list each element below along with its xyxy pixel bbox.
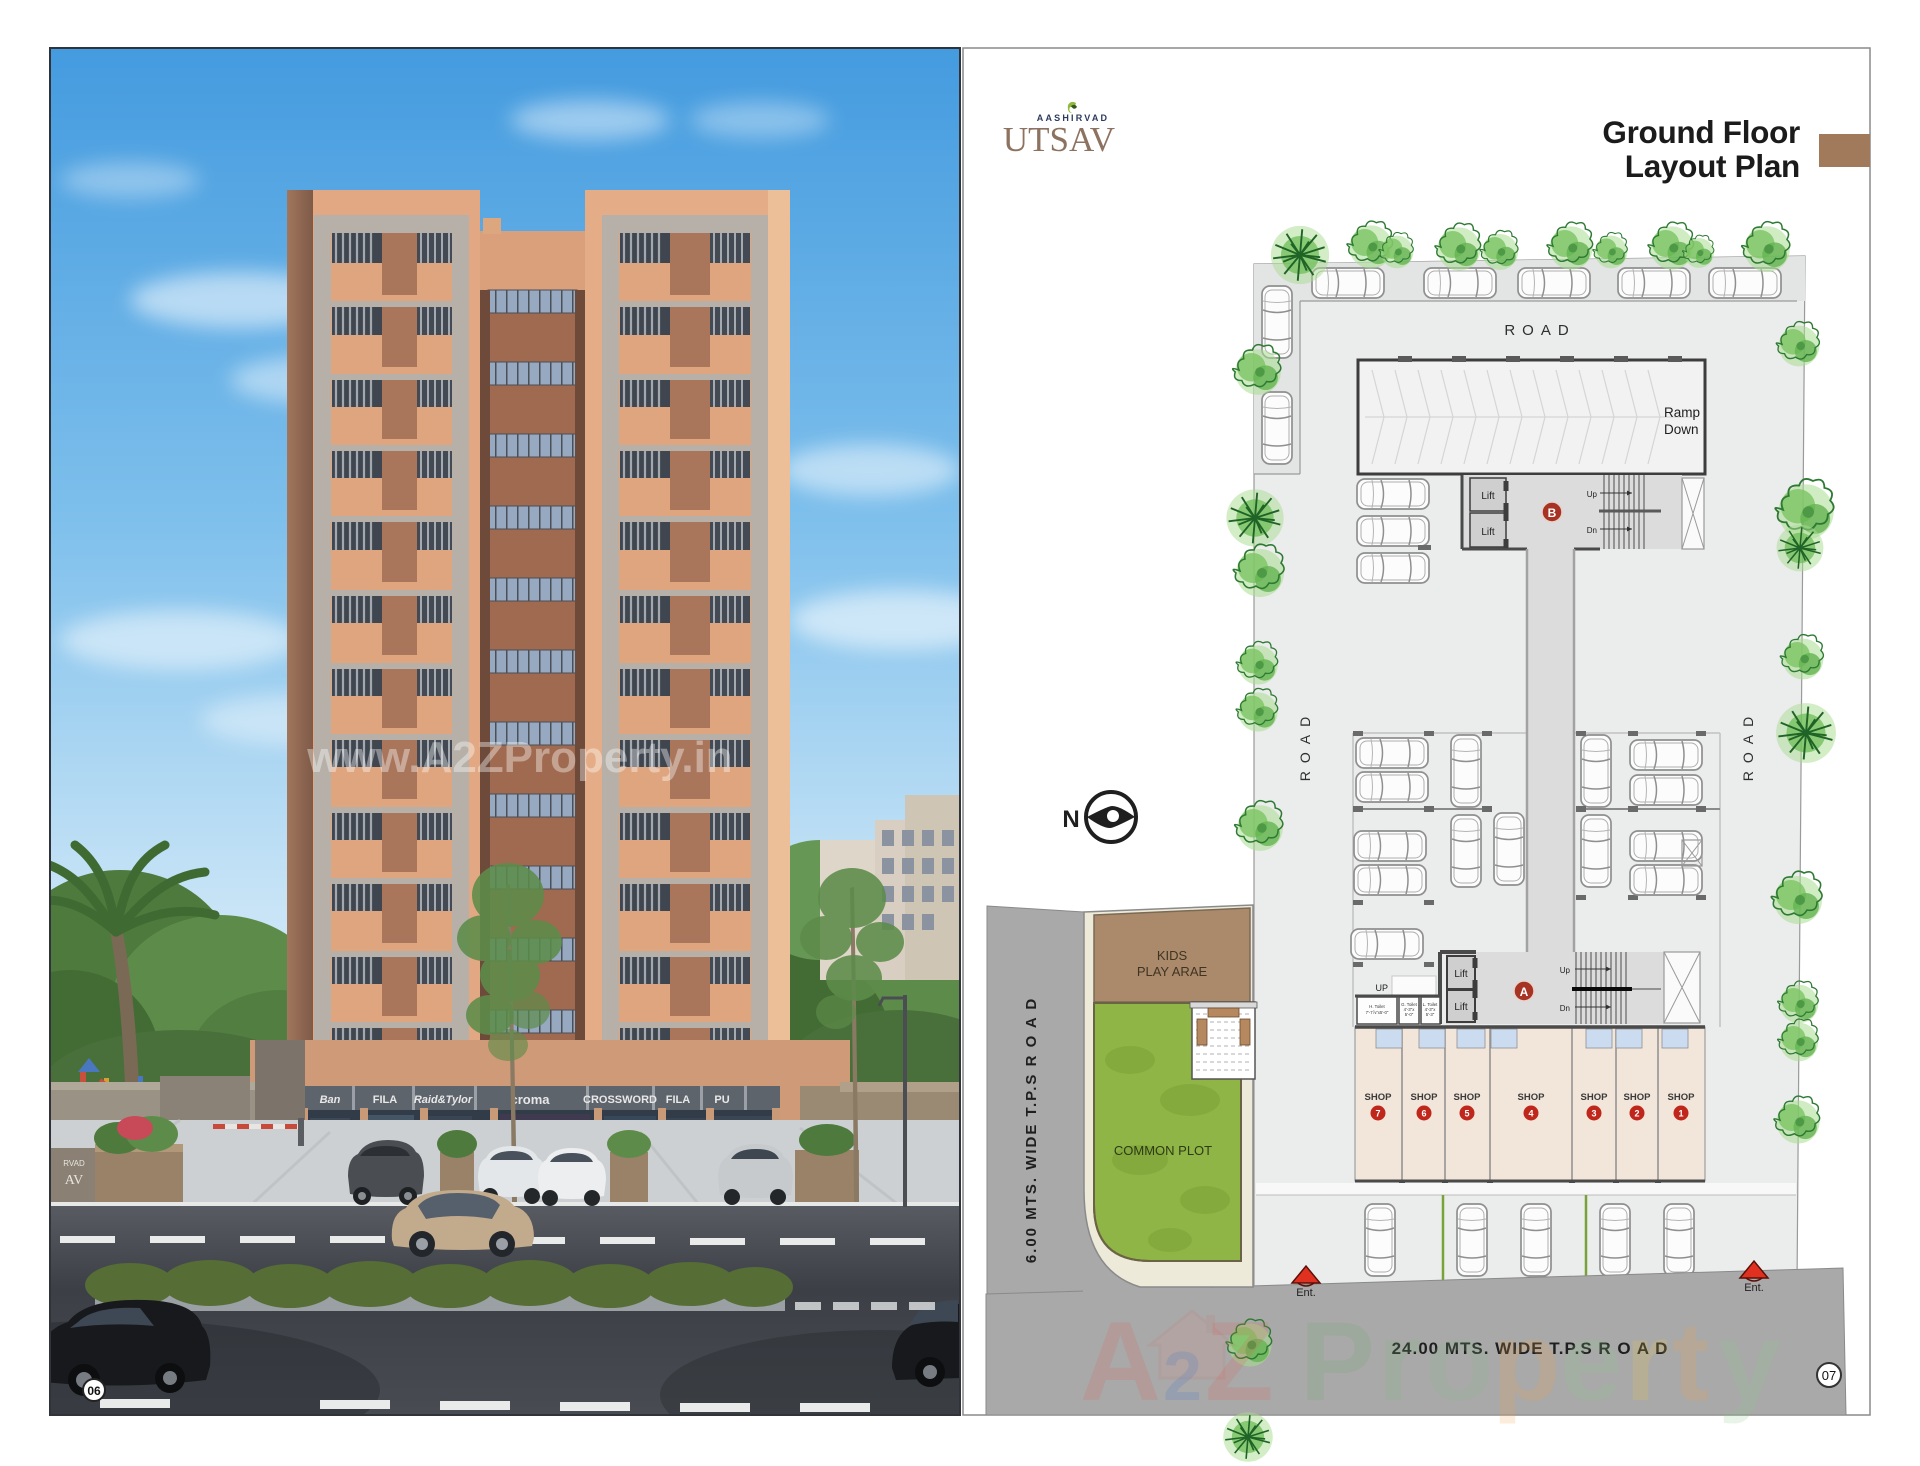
svg-text:ROAD: ROAD bbox=[1740, 709, 1756, 781]
svg-text:2: 2 bbox=[1163, 1337, 1202, 1415]
svg-text:5'-3": 5'-3" bbox=[1426, 1012, 1435, 1017]
svg-text:Dn: Dn bbox=[1560, 1004, 1570, 1013]
svg-text:AV: AV bbox=[65, 1173, 83, 1188]
svg-text:Ent.: Ent. bbox=[1296, 1287, 1316, 1299]
svg-text:H. Toilet: H. Toilet bbox=[1369, 1004, 1385, 1009]
svg-text:A: A bbox=[1520, 985, 1529, 999]
svg-text:SHOP: SHOP bbox=[1668, 1092, 1696, 1103]
svg-text:B: B bbox=[1548, 506, 1557, 520]
svg-text:COMMON PLOT: COMMON PLOT bbox=[1114, 1143, 1212, 1158]
svg-text:SHOP: SHOP bbox=[1581, 1092, 1609, 1103]
svg-text:ROAD: ROAD bbox=[1504, 322, 1575, 339]
svg-text:1: 1 bbox=[1678, 1109, 1683, 1119]
svg-text:SHOP: SHOP bbox=[1518, 1092, 1546, 1103]
svg-text:UP: UP bbox=[1375, 983, 1388, 993]
svg-text:r: r bbox=[1378, 1299, 1422, 1424]
svg-text:croma: croma bbox=[510, 1092, 550, 1107]
svg-text:KIDS: KIDS bbox=[1157, 948, 1188, 963]
svg-text:Ent.: Ent. bbox=[1744, 1282, 1764, 1294]
svg-text:SHOP: SHOP bbox=[1411, 1092, 1439, 1103]
svg-text:SHOP: SHOP bbox=[1454, 1092, 1482, 1103]
svg-text:6: 6 bbox=[1421, 1109, 1426, 1119]
svg-text:FILA: FILA bbox=[666, 1094, 690, 1106]
svg-text:Lift: Lift bbox=[1481, 491, 1495, 502]
svg-text:Dn: Dn bbox=[1587, 526, 1597, 535]
svg-text:r: r bbox=[1625, 1299, 1669, 1424]
svg-text:4: 4 bbox=[1528, 1109, 1533, 1119]
svg-text:o: o bbox=[1425, 1299, 1493, 1424]
svg-text:06: 06 bbox=[87, 1384, 101, 1398]
svg-text:Lift: Lift bbox=[1454, 969, 1468, 980]
svg-text:5: 5 bbox=[1464, 1109, 1469, 1119]
svg-text:P: P bbox=[1300, 1299, 1375, 1424]
svg-text:CROSSWORD: CROSSWORD bbox=[583, 1094, 657, 1106]
svg-text:5'-0": 5'-0" bbox=[1405, 1012, 1414, 1017]
svg-text:Ramp: Ramp bbox=[1664, 405, 1700, 420]
svg-text:3: 3 bbox=[1591, 1109, 1596, 1119]
svg-text:www.A2ZProperty.in: www.A2ZProperty.in bbox=[306, 733, 732, 782]
svg-text:RVAD: RVAD bbox=[63, 1159, 85, 1168]
svg-text:Layout Plan: Layout Plan bbox=[1625, 148, 1800, 184]
svg-text:Up: Up bbox=[1560, 966, 1571, 975]
svg-text:SHOP: SHOP bbox=[1624, 1092, 1652, 1103]
svg-text:7: 7 bbox=[1375, 1109, 1380, 1119]
svg-text:N: N bbox=[1062, 806, 1079, 833]
svg-text:t: t bbox=[1672, 1299, 1709, 1424]
svg-text:A: A bbox=[1080, 1299, 1161, 1424]
svg-text:Z: Z bbox=[1205, 1299, 1273, 1424]
svg-text:SHOP: SHOP bbox=[1365, 1092, 1393, 1103]
svg-text:Up: Up bbox=[1587, 490, 1598, 499]
svg-text:UTSAV: UTSAV bbox=[1003, 120, 1115, 159]
svg-text:07: 07 bbox=[1822, 1368, 1836, 1383]
svg-text:ROAD: ROAD bbox=[1297, 709, 1313, 781]
svg-text:PLAY ARAE: PLAY ARAE bbox=[1137, 964, 1208, 979]
svg-text:7'-7⅞"x5'-0": 7'-7⅞"x5'-0" bbox=[1366, 1010, 1389, 1015]
svg-text:PU: PU bbox=[714, 1094, 729, 1106]
svg-text:p: p bbox=[1492, 1299, 1560, 1424]
svg-text:Down: Down bbox=[1664, 422, 1699, 437]
svg-text:FILA: FILA bbox=[373, 1094, 397, 1106]
svg-text:6.00 MTS. WIDE T.P.S R O: 6.00 MTS. WIDE T.P.S R O A D bbox=[1023, 997, 1040, 1263]
svg-text:Lift: Lift bbox=[1481, 527, 1495, 538]
svg-text:y: y bbox=[1718, 1299, 1780, 1424]
svg-text:e: e bbox=[1560, 1299, 1622, 1424]
svg-text:Ground Floor: Ground Floor bbox=[1602, 114, 1800, 150]
svg-text:Lift: Lift bbox=[1454, 1002, 1468, 1013]
svg-text:Ban: Ban bbox=[320, 1094, 341, 1106]
svg-text:Raid&Tylor: Raid&Tylor bbox=[414, 1094, 473, 1106]
svg-text:2: 2 bbox=[1634, 1109, 1639, 1119]
